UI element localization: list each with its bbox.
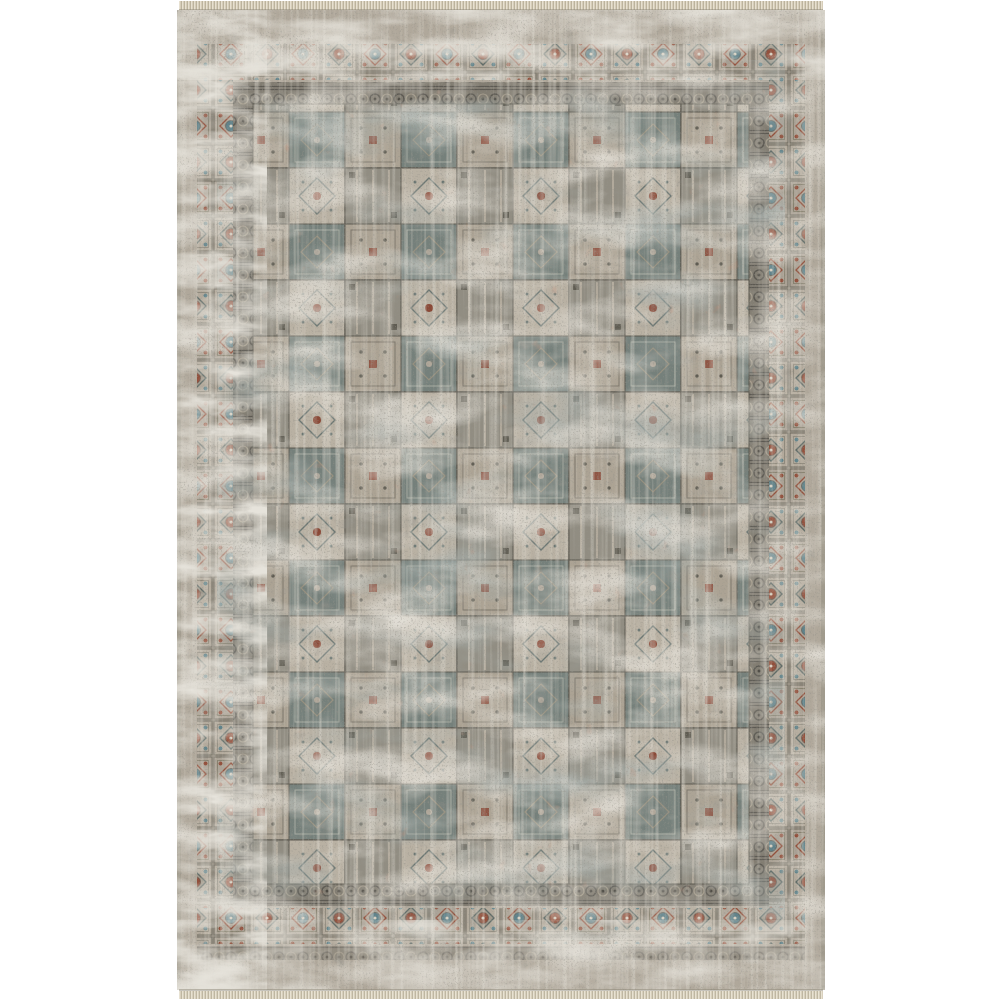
edge-fade-top xyxy=(177,10,825,80)
rug-photo xyxy=(177,0,825,1000)
fringe-top xyxy=(179,1,823,10)
edge-fade-bottom xyxy=(177,920,825,990)
edge-fade-left xyxy=(177,10,267,990)
rug-body xyxy=(177,10,825,990)
fringe-bottom xyxy=(179,990,823,999)
fine-grain xyxy=(177,10,825,990)
photo-canvas xyxy=(0,0,1000,1000)
distress-overlays xyxy=(177,10,825,990)
